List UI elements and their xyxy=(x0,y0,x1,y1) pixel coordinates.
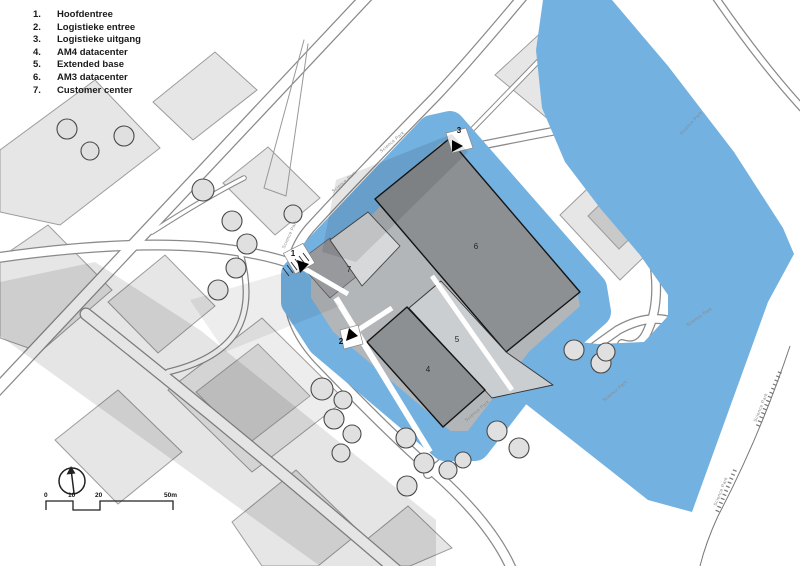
tree xyxy=(222,211,242,231)
legend-item-number: 3. xyxy=(33,34,57,47)
street-label: Science Park xyxy=(753,392,769,423)
marker-3-label: 3 xyxy=(457,126,462,135)
tree xyxy=(311,378,333,400)
legend-item-number: 5. xyxy=(33,59,57,72)
scale-tick-20: 20 xyxy=(95,492,103,499)
tree xyxy=(81,142,99,160)
scale-tick-0: 0 xyxy=(44,492,48,499)
tree xyxy=(192,179,214,201)
legend-item-label: Extended base xyxy=(57,59,124,72)
legend-item: 3. Logistieke uitgang xyxy=(33,34,141,47)
tree xyxy=(396,428,416,448)
tree xyxy=(332,444,350,462)
legend-item-label: Hoofdentree xyxy=(57,9,113,22)
tree xyxy=(324,409,344,429)
legend-item-label: Logistieke uitgang xyxy=(57,34,141,47)
label-building-4: 4 xyxy=(426,365,431,374)
tree xyxy=(226,258,246,278)
site-plan: 6 5 4 7 xyxy=(0,0,800,566)
legend: 1. Hoofdentree 2. Logistieke entree 3. L… xyxy=(33,9,141,97)
legend-item-label: Customer center xyxy=(57,85,133,98)
legend-item-label: Logistieke entree xyxy=(57,22,135,35)
legend-item: 6. AM3 datacenter xyxy=(33,72,141,85)
tree xyxy=(597,343,615,361)
legend-item-number: 7. xyxy=(33,85,57,98)
label-building-5: 5 xyxy=(455,335,460,344)
legend-item: 7. Customer center xyxy=(33,85,141,98)
tree xyxy=(114,126,134,146)
legend-item-number: 4. xyxy=(33,47,57,60)
tree xyxy=(509,438,529,458)
tree xyxy=(334,391,352,409)
north-arrow-icon xyxy=(59,466,85,494)
legend-item-label: AM4 datacenter xyxy=(57,47,128,60)
marker-2-label: 2 xyxy=(339,337,344,346)
tree xyxy=(343,425,361,443)
tree xyxy=(487,421,507,441)
legend-item-number: 1. xyxy=(33,9,57,22)
tree xyxy=(237,234,257,254)
building-footprint xyxy=(0,80,160,225)
tree xyxy=(564,340,584,360)
tree xyxy=(208,280,228,300)
tree xyxy=(439,461,457,479)
scale-tick-50: 50m xyxy=(164,492,177,499)
marker-1-label: 1 xyxy=(291,249,296,258)
legend-item: 2. Logistieke entree xyxy=(33,22,141,35)
label-building-6: 6 xyxy=(474,242,479,251)
legend-item-number: 6. xyxy=(33,72,57,85)
tree xyxy=(57,119,77,139)
legend-item-label: AM3 datacenter xyxy=(57,72,128,85)
label-building-7: 7 xyxy=(347,265,352,274)
legend-item-number: 2. xyxy=(33,22,57,35)
tree xyxy=(397,476,417,496)
tree xyxy=(414,453,434,473)
legend-item: 4. AM4 datacenter xyxy=(33,47,141,60)
tree xyxy=(455,452,471,468)
scale-tick-10: 10 xyxy=(68,492,76,499)
legend-item: 5. Extended base xyxy=(33,59,141,72)
legend-item: 1. Hoofdentree xyxy=(33,9,141,22)
